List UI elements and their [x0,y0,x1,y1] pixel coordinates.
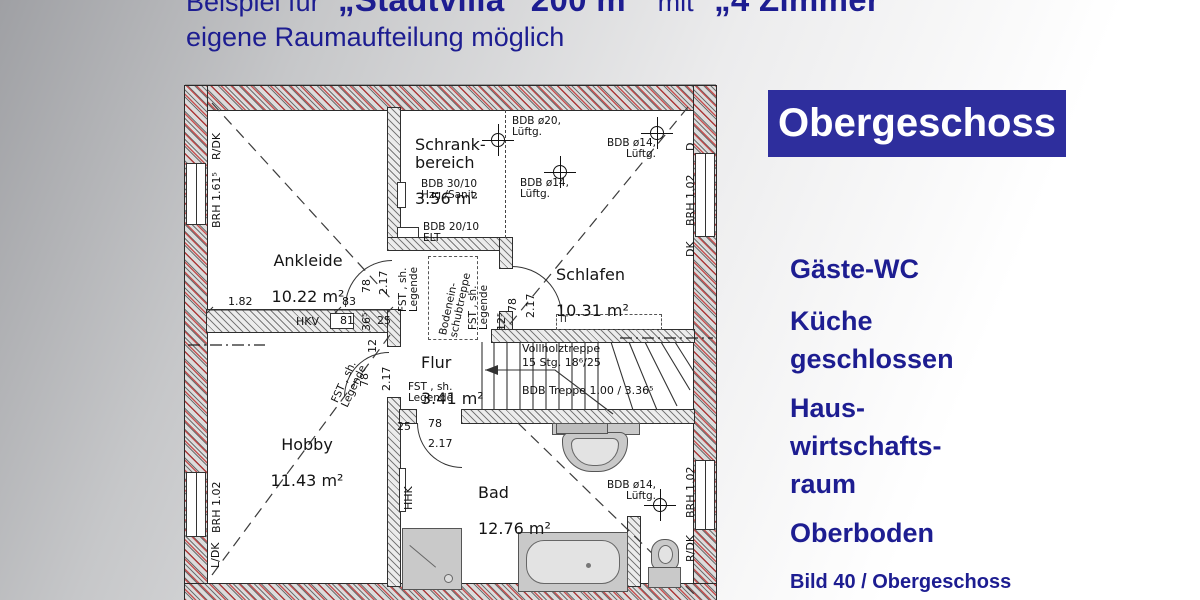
annotation-vent14: BDB ø14, Lüftg. [598,480,656,503]
dim-text: 78 [358,373,371,387]
feature-item: Oberboden [790,514,934,552]
annotation-vent14: BDB ø14, Lüftg. [598,138,656,161]
annotation-vent20: BDB ø20, Lüftg. [512,116,574,139]
room-name: Flur [421,354,491,372]
wall-label: BRH 1.61⁵ [210,172,223,228]
wall-label: D [684,143,697,151]
dim-text: 2.17 [380,367,393,392]
title-highlight-2: „4 Zimmer“ [714,0,897,18]
page-title: Beispiel für „Stadtvilla“ 200 m² mit „4 … [186,0,897,19]
wc-bowl-inner [658,545,673,564]
annotation-hhk: HHK [402,486,415,510]
room-label: Schrank- bereich 3.56 m² [415,118,525,225]
dim-text: 12 [366,339,379,353]
duct-box [397,182,406,208]
wall-label: BRH 1.02 [684,175,697,226]
page-subtitle: eigene Raumaufteilung möglich [186,22,564,53]
title-prefix: Beispiel für [186,0,320,17]
stair-label: Vollholztreppe [522,342,600,355]
room-label: Schlafen 10.31 m² [556,248,656,338]
dim-text: 2.17 [377,271,390,296]
wall-label: R/DK [684,535,697,562]
floor-heading-box: Obergeschoss [768,90,1066,157]
annotation-fst: FST , sh. Legende [408,382,470,405]
wall-label: R/DK [210,133,223,160]
dim-text: 2.17 [428,437,453,450]
feature-item: Haus- wirtschafts- raum [790,389,942,503]
feature-item: Küche geschlossen [790,302,954,378]
dim-text: 78 [428,417,442,430]
shower [402,528,462,590]
feature-item: Gäste-WC [790,250,919,288]
room-area: 10.31 m² [556,302,656,320]
title-mid: mit [658,0,694,17]
bathtub-drain [586,563,591,568]
annotation-bdb3010: BDB 30/10 Hzg./Sanit. [421,179,493,202]
shower-drain [444,574,453,583]
wall-label: L/DK [209,542,222,568]
dim-text: 25 [377,314,391,327]
wc-tank [648,567,681,588]
room-label: Ankleide 10.22 m² [252,234,364,324]
wall-label: BRH 1.02 [684,467,697,518]
wall-label: DK [684,241,697,257]
annotation-it: IT [560,316,568,326]
annotation-vent14: BDB ø14, Lüftg. [520,178,578,201]
dim-text: 1.82 [228,295,253,308]
room-name: Bad [478,484,568,502]
dim-text: 83 [342,295,356,308]
dim-text: 2.17 [524,294,537,319]
room-area: 11.43 m² [252,472,362,490]
dim-text: 36⁵ [360,313,373,331]
dim-text: 81 [340,314,354,327]
room-area: 12.76 m² [478,520,568,538]
title-highlight-1: „Stadtvilla“ 200 m² [338,0,637,18]
annotation-bdb2010: BDB 20/10 ELT [423,222,495,245]
dim-text: 78 [506,298,519,312]
room-name: Ankleide [252,252,364,270]
annotation-fst: FST , sh. Legende [398,252,421,312]
room-name: Schlafen [556,266,656,284]
annotation-hkv: HKV [296,315,319,328]
slide: Beispiel für „Stadtvilla“ 200 m² mit „4 … [0,0,1200,600]
dim-text: 12⁵ [495,313,508,331]
dim-text: 25 [397,420,411,433]
room-name: Hobby [252,436,362,454]
wall-label: BRH 1.02 [210,482,223,533]
stair-label: 15 Stg. 18⁶/25 [522,356,601,369]
room-label: Bad 12.76 m² [478,466,568,556]
room-label: Hobby 11.43 m² [252,418,362,508]
image-caption: Bild 40 / Obergeschoss [790,571,1011,594]
dim-text: 78 [360,279,373,293]
stair-label: BDB Treppe 1.00 / 3.36⁵ [522,384,654,397]
stair-landing-stub [556,423,608,434]
duct-box [397,227,419,238]
room-name: Schrank- bereich [415,136,525,172]
